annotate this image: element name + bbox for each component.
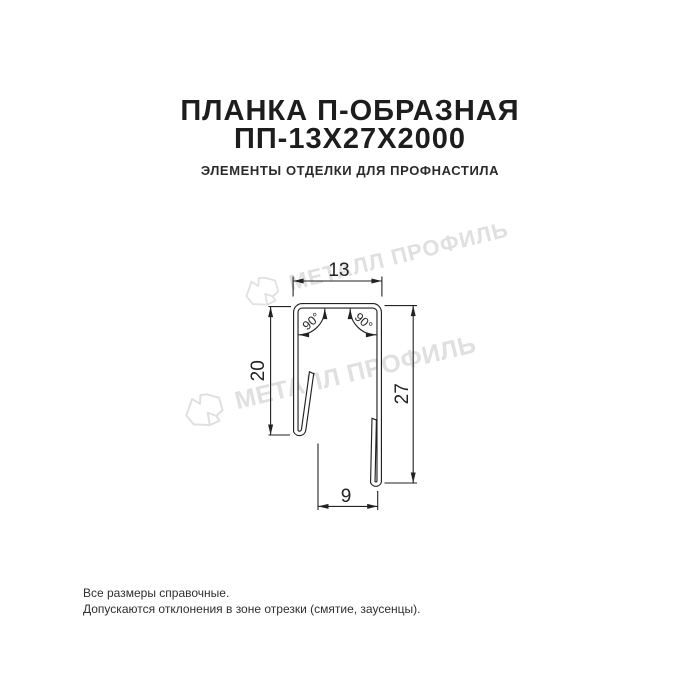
catalog-page: ПЛАНКА П-ОБРАЗНАЯ ПП-13Х27Х2000 ЭЛЕМЕНТЫ… (0, 0, 700, 700)
dimension-top-width-label: 13 (328, 260, 349, 281)
dimension-right-height-label: 27 (392, 383, 413, 404)
footer-notes: Все размеры справочные. Допускаются откл… (83, 586, 420, 617)
dimension-left-height (269, 307, 292, 435)
footer-note-2: Допускаются отклонения в зоне отрезки (с… (83, 602, 420, 618)
page-title: ПЛАНКА П-ОБРАЗНАЯ ПП-13Х27Х2000 (0, 97, 700, 153)
footer-note-1: Все размеры справочные. (83, 586, 420, 602)
dimension-bottom-width-label: 9 (341, 486, 352, 507)
title-line-1: ПЛАНКА П-ОБРАЗНАЯ (0, 97, 700, 125)
angle-left-label: 90° (300, 310, 323, 333)
angle-right-label: 90° (352, 310, 375, 333)
title-line-2: ПП-13Х27Х2000 (0, 125, 700, 153)
dimension-left-height-label: 20 (248, 360, 269, 381)
page-subtitle: ЭЛЕМЕНТЫ ОТДЕЛКИ ДЛЯ ПРОФНАСТИЛА (0, 163, 700, 178)
